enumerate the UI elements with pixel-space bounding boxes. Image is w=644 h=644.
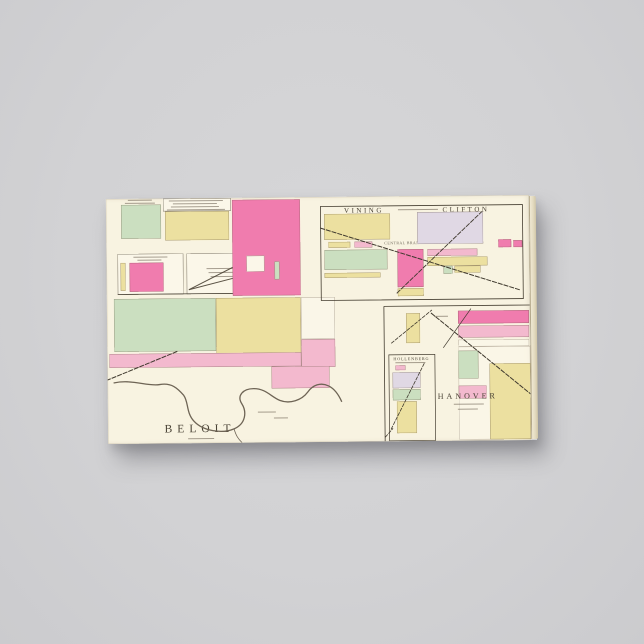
plat-block-green-hanover [458,350,478,378]
plat-block-pink-boxed [129,263,163,292]
microtext-mark [167,208,225,210]
plat-block-white-beloit-east [301,297,335,339]
canvas-face-map: BELOIT VINING CLIFTON CENTRAL BRANCH U.P… [106,195,531,444]
plat-block-pink-clifton-south [397,249,423,287]
plat-block-yellow-hollenberg [397,401,417,433]
plat-notch-white [246,256,264,272]
plat-block-green-beloit-west [114,298,217,352]
plat-row-pink-hanover-north-2 [458,325,529,338]
microtext-mark [137,259,161,260]
microtext-mark [398,209,438,210]
plat-strip-yellow-vining [325,272,381,278]
plat-block-pink-large [232,199,301,296]
plat-block-green-hollenberg [393,389,421,400]
plat-block-yellow-hanover [489,363,531,439]
plat-block-yellow-clifton-south [398,288,424,296]
plat-block-yellow-nw [165,211,229,241]
plat-row-yellow-vining [328,242,350,248]
plat-row-pink-vining [354,242,372,248]
plat-block-pink-clifton-east-2 [513,240,522,247]
microtext-mark [128,200,152,201]
microtext-mark [188,438,214,439]
microtext-mark [171,206,219,207]
plat-strip-yellow [120,263,125,291]
plat-block-lavender-clifton [417,211,483,244]
canvas-print: BELOIT VINING CLIFTON CENTRAL BRANCH U.P… [106,195,537,444]
plat-sliver-green [274,261,279,279]
microtext-mark [173,203,217,204]
microtext-mark [258,411,276,412]
microtext-mark [133,256,167,257]
plat-row-pink-clifton [427,249,477,256]
microtext-mark [434,316,448,317]
microtext-mark [458,409,478,410]
microtext-mark [125,202,155,203]
microtext-mark [169,200,223,202]
plat-block-pink-clifton-east [498,239,511,247]
plat-block-green-clifton [443,266,452,274]
plat-row-yellow-clifton-2 [454,265,480,272]
plat-block-green-nw [121,205,161,239]
plat-row-pink-hanover-north [458,310,529,324]
plat-block-green-vining [324,249,387,270]
hanover-label: HANOVER [438,391,498,401]
plat-block-yellow-beloit-main [216,297,302,354]
hollenberg-label: HOLLENBERG [389,356,433,361]
plat-block-yellow-vining [324,213,390,240]
plat-block-lavender-hollenberg [393,372,421,388]
plat-block-yellow-north-hollenberg [406,313,420,343]
plat-block-pink-beloit-se [271,366,329,389]
plat-block-rose-beloit-east [301,339,335,367]
microtext-mark [274,417,288,418]
beloit-label: BELOIT [152,423,248,436]
plat-block-pink-hollenberg [395,365,405,370]
plat-title-panel [163,198,231,212]
boxed-plat-panel [117,253,183,295]
studio-background: BELOIT VINING CLIFTON CENTRAL BRANCH U.P… [0,0,644,644]
microtext-mark [395,362,425,363]
